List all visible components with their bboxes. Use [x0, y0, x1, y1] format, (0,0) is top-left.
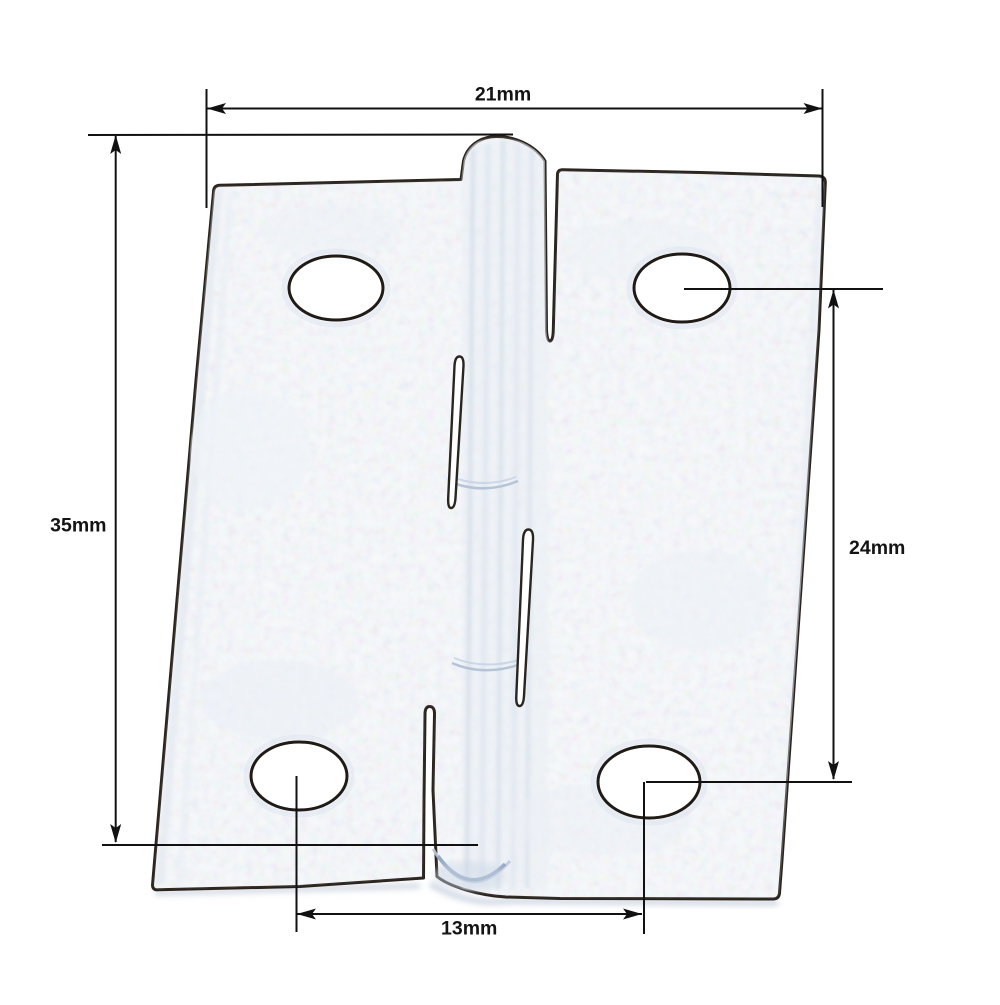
svg-text:21mm: 21mm	[475, 84, 531, 106]
svg-text:24mm: 24mm	[849, 537, 905, 559]
svg-text:35mm: 35mm	[50, 515, 106, 537]
svg-text:13mm: 13mm	[441, 918, 497, 940]
